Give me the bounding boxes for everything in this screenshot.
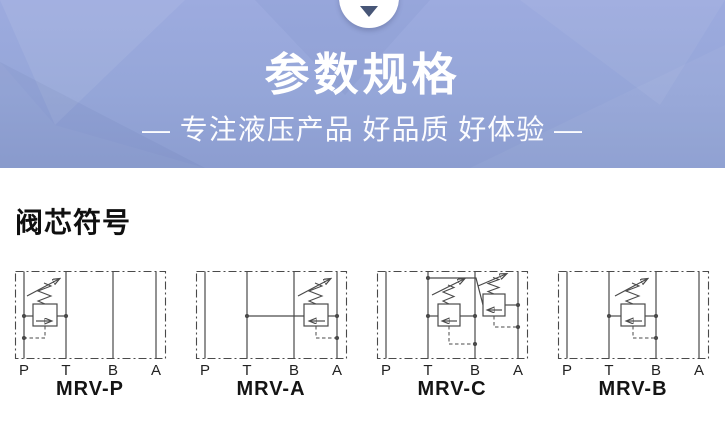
diagram-name: MRV-C	[417, 378, 486, 400]
port-labels: P T B A	[562, 362, 704, 379]
relief-valve-symbol	[607, 279, 658, 340]
port-label-p: P	[562, 362, 572, 379]
valve-diagram-mrv-b: P T B A MRV-B	[557, 270, 717, 400]
diagram-name: MRV-A	[236, 378, 305, 400]
port-label-a: A	[332, 362, 342, 379]
port-label-t: T	[242, 362, 251, 379]
chevron-down-icon	[360, 6, 378, 17]
relief-valve-symbol	[22, 279, 68, 340]
page: 参数规格 — 专注液压产品 好品质 好体验 — 阀芯符号	[0, 0, 725, 446]
port-label-b: B	[289, 362, 299, 379]
relief-valve-symbol	[245, 279, 339, 340]
port-labels: P T B A	[381, 362, 523, 379]
valve-diagram-mrv-a: P T B A MRV-A	[195, 270, 355, 400]
relief-valve-symbol-b	[426, 279, 477, 346]
port-label-p: P	[19, 362, 29, 379]
valve-diagram-mrv-p: P T B A MRV-P	[14, 270, 174, 400]
port-label-b: B	[651, 362, 661, 379]
port-label-p: P	[200, 362, 210, 379]
port-label-t: T	[423, 362, 432, 379]
valve-diagram-mrv-c: P T B A MRV-C	[376, 270, 536, 400]
port-label-p: P	[381, 362, 391, 379]
port-labels: P T B A	[200, 362, 342, 379]
diagram-name: MRV-B	[598, 378, 667, 400]
port-label-t: T	[604, 362, 613, 379]
banner: 参数规格 — 专注液压产品 好品质 好体验 —	[0, 0, 725, 168]
port-label-b: B	[470, 362, 480, 379]
banner-subtitle: — 专注液压产品 好品质 好体验 —	[0, 108, 725, 148]
valve-diagrams-row: P T B A MRV-P	[14, 270, 717, 400]
banner-title: 参数规格	[0, 38, 725, 103]
diagram-name: MRV-P	[56, 378, 124, 400]
port-label-a: A	[151, 362, 161, 379]
port-labels: P T B A	[19, 362, 161, 379]
section-heading: 阀芯符号	[15, 201, 131, 241]
port-label-a: A	[513, 362, 523, 379]
port-label-a: A	[694, 362, 704, 379]
port-label-b: B	[108, 362, 118, 379]
port-label-t: T	[61, 362, 70, 379]
